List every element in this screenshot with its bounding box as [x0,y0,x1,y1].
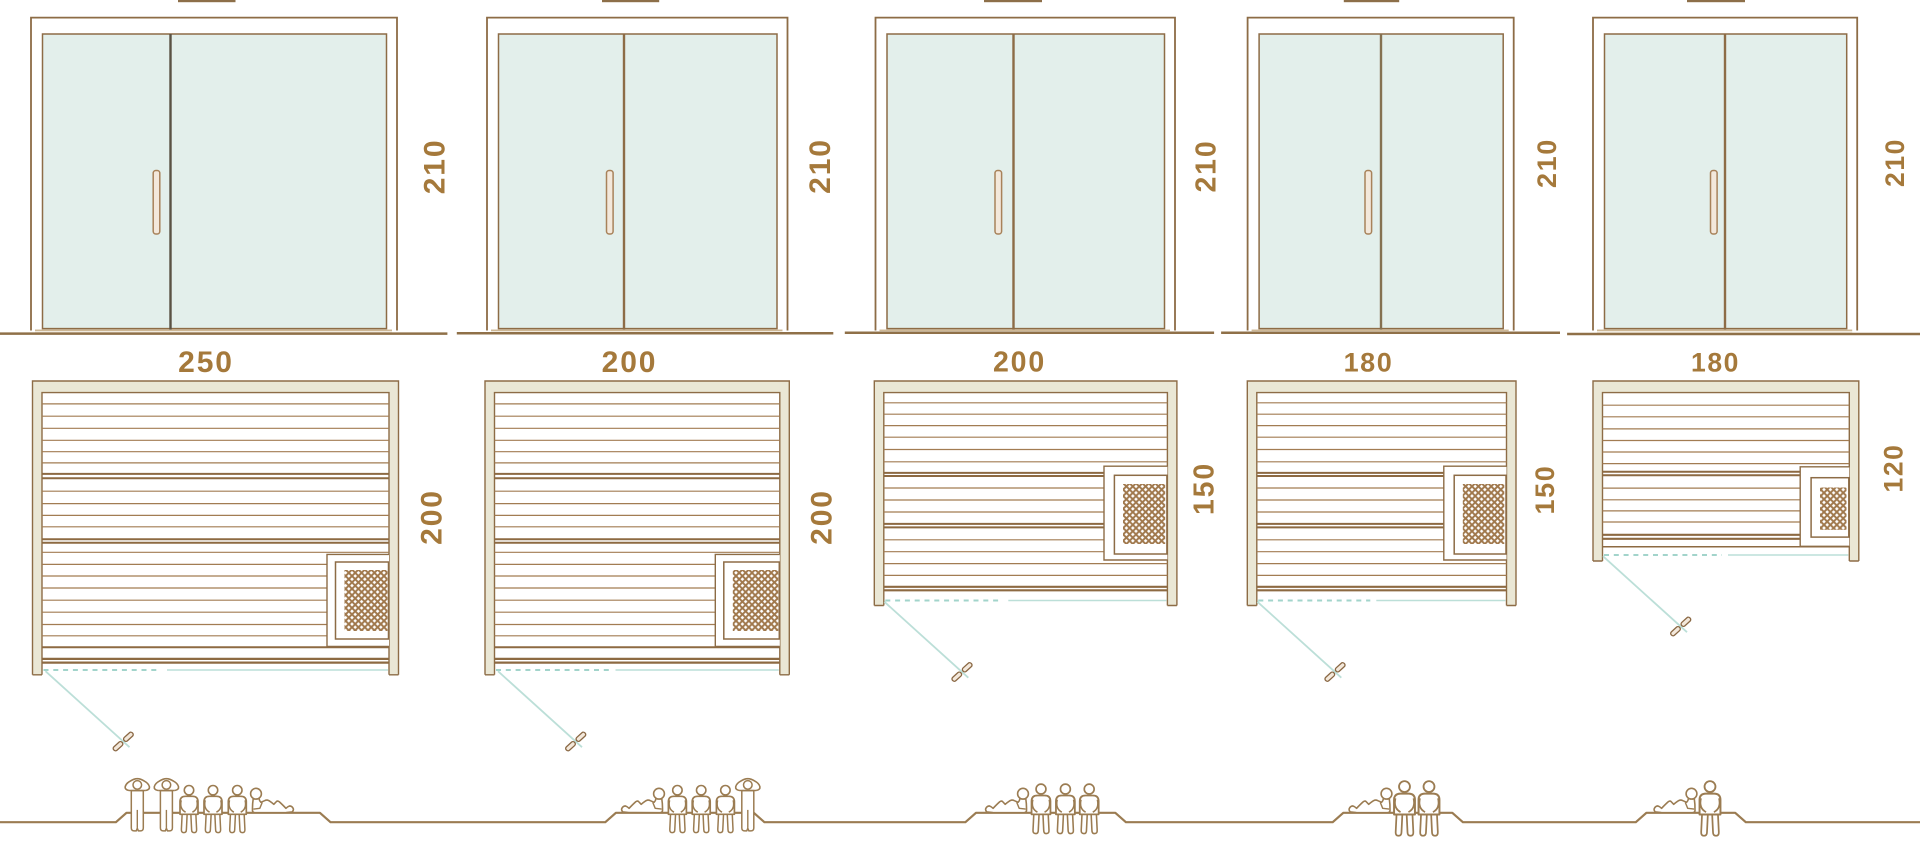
svg-text:250: 250 [178,346,234,379]
svg-text:150: 150 [1189,462,1221,515]
svg-text:210: 210 [1880,138,1910,187]
svg-text:180: 180 [1691,348,1740,378]
svg-text:210: 210 [419,139,452,195]
svg-text:200: 200 [602,346,658,379]
svg-text:210: 210 [1190,140,1222,193]
svg-text:210: 210 [804,138,837,194]
svg-text:150: 150 [1530,465,1560,515]
svg-text:210: 210 [1532,138,1562,188]
svg-text:180: 180 [1344,348,1394,378]
svg-text:200: 200 [993,347,1046,379]
svg-text:200: 200 [415,489,448,545]
svg-text:200: 200 [806,489,839,545]
svg-text:120: 120 [1879,443,1909,492]
